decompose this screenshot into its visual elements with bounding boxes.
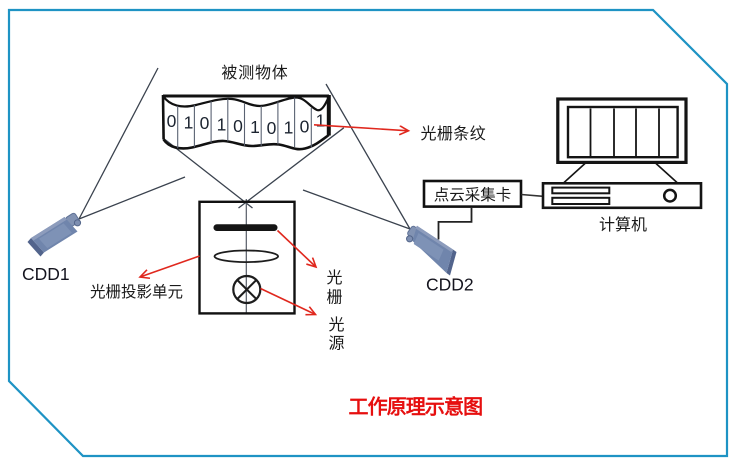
svg-text:1: 1	[217, 115, 227, 135]
svg-text:0: 0	[267, 118, 277, 138]
svg-text:光栅条纹: 光栅条纹	[421, 125, 487, 143]
svg-text:被测物体: 被测物体	[221, 64, 288, 82]
svg-text:1: 1	[250, 117, 260, 137]
svg-text:0: 0	[233, 116, 243, 136]
svg-text:光栅投影单元: 光栅投影单元	[90, 283, 183, 301]
svg-text:栅: 栅	[326, 289, 342, 307]
svg-text:1: 1	[284, 118, 294, 138]
svg-text:CDD2: CDD2	[426, 275, 474, 295]
svg-text:0: 0	[300, 117, 310, 137]
svg-text:0: 0	[167, 111, 177, 131]
svg-text:源: 源	[328, 335, 344, 353]
svg-text:计算机: 计算机	[599, 215, 647, 234]
svg-text:1: 1	[316, 111, 326, 131]
svg-text:光: 光	[328, 316, 344, 334]
svg-text:0: 0	[200, 113, 210, 133]
svg-text:CDD1: CDD1	[22, 264, 70, 284]
svg-text:工作原理示意图: 工作原理示意图	[349, 395, 483, 419]
svg-text:1: 1	[184, 113, 194, 133]
svg-text:光: 光	[326, 269, 342, 287]
svg-text:点云采集卡: 点云采集卡	[434, 186, 512, 204]
